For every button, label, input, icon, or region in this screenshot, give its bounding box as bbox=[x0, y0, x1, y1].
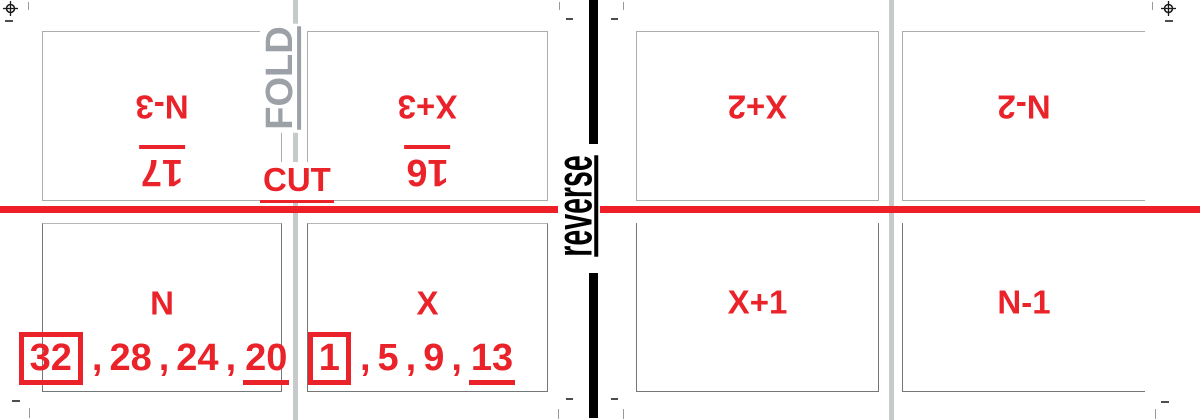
crop-tick bbox=[558, 409, 559, 419]
panel-n-minus-2: N-2 bbox=[902, 31, 1145, 201]
panel-n-minus-1: N-1 bbox=[902, 223, 1145, 392]
fold-label: FOLD bbox=[260, 23, 302, 132]
page-number: 24 bbox=[176, 339, 218, 377]
page-number: 9 bbox=[423, 339, 444, 377]
registration-mark-icon bbox=[3, 1, 18, 16]
crop-tick bbox=[28, 2, 29, 10]
reverse-bar-bottom bbox=[589, 273, 598, 418]
separator: , bbox=[92, 339, 103, 377]
page-sequence: 32,28,24,20 bbox=[35, 332, 273, 385]
panel-label: N-1 bbox=[997, 286, 1050, 319]
crop-dash bbox=[5, 20, 13, 22]
flipped-content: N-2 bbox=[903, 32, 1145, 200]
reverse-bar-top bbox=[589, 0, 598, 144]
crop-tick bbox=[623, 2, 624, 10]
separator: , bbox=[226, 339, 237, 377]
separator: , bbox=[406, 339, 417, 377]
cut-line-left bbox=[0, 206, 558, 213]
page-number-underlined: 20 bbox=[243, 339, 289, 385]
page-number: 28 bbox=[109, 339, 151, 377]
page-number-boxed: 32 bbox=[19, 332, 83, 385]
crop-dash bbox=[566, 18, 573, 20]
page-number: 5 bbox=[378, 339, 399, 377]
crop-tick bbox=[1152, 2, 1153, 10]
crop-tick bbox=[1155, 409, 1156, 419]
panel-n-minus-3: 17 N-3 bbox=[42, 31, 282, 201]
panel-n: N 32,28,24,20 bbox=[42, 223, 282, 392]
crop-dash bbox=[1165, 20, 1173, 22]
panel-x: X 1,5,9,13 bbox=[307, 223, 548, 392]
page-number: 17 bbox=[139, 145, 185, 191]
page-number-underlined: 13 bbox=[469, 339, 515, 385]
panel-label: X+1 bbox=[728, 286, 788, 319]
reverse-label: reverse bbox=[546, 155, 604, 256]
page-sequence: 1,5,9,13 bbox=[292, 332, 531, 385]
flipped-content: 16 X+3 bbox=[308, 32, 547, 200]
cut-line-right bbox=[600, 206, 1200, 213]
page-number: 16 bbox=[404, 145, 450, 191]
panel-label: X+2 bbox=[728, 91, 788, 124]
panel-x-plus-2: X+2 bbox=[636, 31, 879, 201]
crop-dash bbox=[1161, 401, 1169, 403]
panel-label: X bbox=[416, 286, 438, 319]
cut-label: CUT bbox=[260, 162, 334, 203]
panel-label: N-3 bbox=[135, 91, 188, 124]
page-number-boxed: 1 bbox=[308, 332, 351, 385]
crop-tick bbox=[29, 408, 30, 418]
crop-tick bbox=[559, 2, 560, 10]
separator: , bbox=[360, 339, 371, 377]
separator: , bbox=[451, 339, 462, 377]
separator: , bbox=[159, 339, 170, 377]
panel-x-plus-3: 16 X+3 bbox=[307, 31, 548, 201]
flipped-content: 17 N-3 bbox=[43, 32, 281, 200]
crop-dash bbox=[566, 398, 573, 400]
flipped-content: X+2 bbox=[637, 32, 878, 200]
crop-tick bbox=[623, 409, 624, 419]
imposition-template: 17 N-3 16 X+3 X+2 N-2 N 32,28,24,20 X 1,… bbox=[0, 0, 1200, 420]
panel-label: X+3 bbox=[398, 91, 458, 124]
crop-dash bbox=[611, 398, 618, 400]
crop-dash bbox=[12, 400, 20, 402]
crop-dash bbox=[611, 18, 618, 20]
panel-label: N-2 bbox=[997, 91, 1050, 124]
panel-label: N bbox=[150, 286, 174, 319]
registration-mark-icon bbox=[1161, 1, 1176, 16]
panel-x-plus-1: X+1 bbox=[636, 223, 879, 392]
